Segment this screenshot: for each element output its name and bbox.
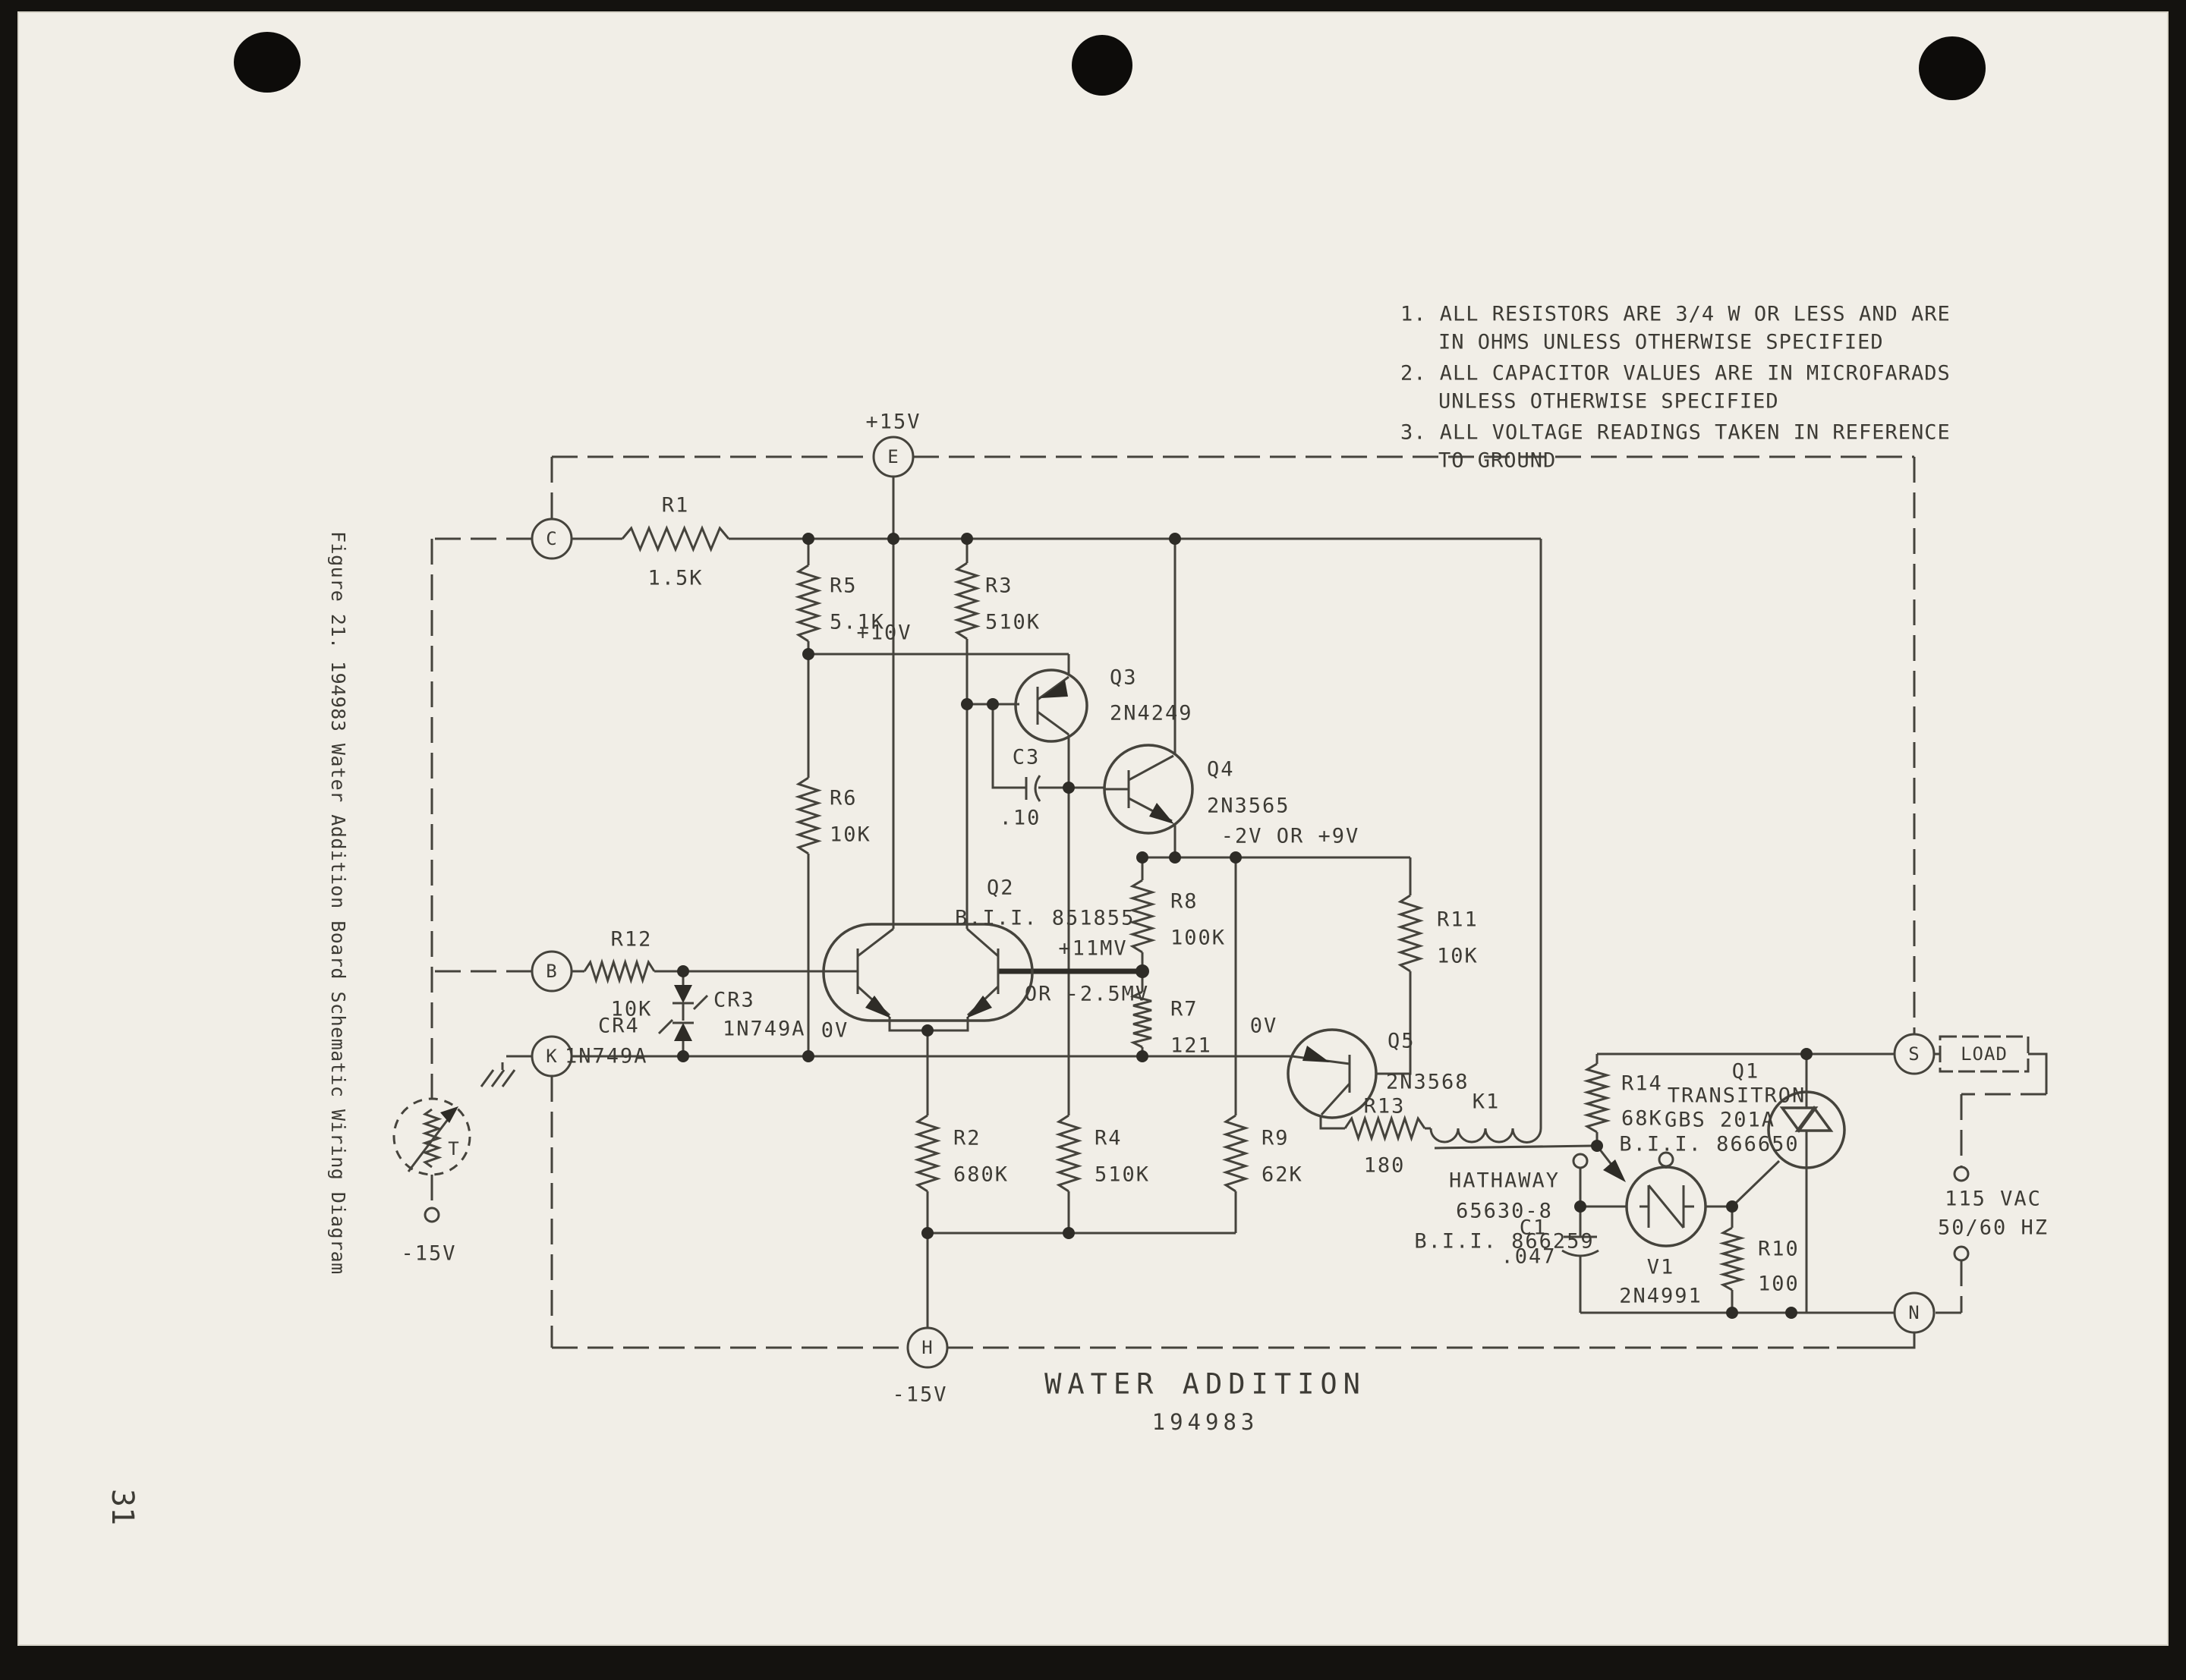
terminal-k-label: K [546,1046,557,1067]
terminal-s-label: S [1908,1043,1920,1065]
note-line: TO GROUND [1438,449,1556,473]
r14-ref: R14 [1621,1072,1663,1096]
r9-value: 62K [1262,1163,1303,1187]
terminal-b-label: B [546,961,557,982]
r3-ref: R3 [985,574,1013,598]
k1-ref: K1 [1473,1090,1501,1114]
punch-hole [234,32,301,93]
hz-label: 50/60 HZ [1938,1216,2049,1240]
punch-hole [1919,36,1986,100]
load-label: LOAD [1961,1043,2008,1065]
schematic-number: 194983 [1152,1409,1259,1435]
r11-value: 10K [1437,945,1479,968]
cr3-value: 1N749A [723,1018,806,1041]
voltage-0v-left: 0V [821,1019,849,1043]
r8-value: 100K [1170,927,1226,950]
voltage-2v-9v: -2V OR +9V [1221,825,1360,848]
v1-value: 2N4991 [1619,1285,1702,1308]
terminal-c-label: C [546,528,557,549]
voltage-11mv: +11MV [1058,937,1127,961]
q4-value: 2N3565 [1207,794,1290,818]
r6-ref: R6 [830,787,858,810]
r1-ref: R1 [662,494,690,518]
r10-ref: R10 [1758,1238,1800,1261]
r14-value: 68K [1621,1107,1663,1131]
scanned-schematic-page: +15V E C B K H S N LOAD T R1 1.5K +10V R… [0,0,2186,1680]
q4-ref: Q4 [1207,758,1235,782]
schematic-canvas: +15V E C B K H S N LOAD T R1 1.5K +10V R… [0,0,2186,1680]
note-line: 3. ALL VOLTAGE READINGS TAKEN IN REFEREN… [1400,421,1951,445]
r10-value: 100 [1758,1273,1800,1296]
r4-value: 510K [1095,1163,1150,1187]
q1-bii: B.I.I. 866650 [1619,1133,1799,1156]
r4-ref: R4 [1095,1127,1123,1150]
schematic-title: WATER ADDITION [1044,1368,1366,1401]
r5-value: 5.1K [830,611,885,634]
r12-ref: R12 [611,928,653,952]
q5-value: 2N3568 [1386,1071,1469,1094]
q3-value: 2N4249 [1110,702,1193,725]
k1-maker: HATHAWAY [1449,1169,1560,1193]
voltage-plus15: +15V [865,411,921,434]
note-line: 1. ALL RESISTORS ARE 3/4 W OR LESS AND A… [1400,303,1951,326]
c1-value: .047 [1501,1245,1556,1269]
h-minus15: -15V [892,1383,947,1407]
q1-maker: TRANSITRON [1668,1084,1806,1108]
note-line: UNLESS OTHERWISE SPECIFIED [1438,390,1779,414]
v1-ref: V1 [1647,1256,1675,1279]
terminal-n-label: N [1908,1302,1920,1323]
vac-label: 115 VAC [1945,1188,2042,1211]
terminal-e-label: E [887,446,899,467]
probe-minus15: -15V [401,1242,456,1266]
page-number: 31 [105,1489,140,1525]
r5-ref: R5 [830,574,858,598]
voltage-0v-right: 0V [1250,1015,1278,1038]
note-line: 2. ALL CAPACITOR VALUES ARE IN MICROFARA… [1400,362,1951,385]
terminal-h-label: H [921,1337,933,1358]
c1-ref: C1 [1520,1216,1548,1240]
r7-ref: R7 [1170,998,1199,1021]
r2-ref: R2 [953,1127,981,1150]
r7-value: 121 [1170,1034,1212,1058]
c3-ref: C3 [1013,746,1041,769]
voltage-minus25mv: OR -2.5MV [1025,983,1149,1006]
q1-value: GBS 201A [1665,1109,1775,1132]
r13-value: 180 [1364,1154,1406,1178]
cr4-ref: CR4 [598,1015,640,1038]
figure-caption: Figure 21. 194983 Water Addition Board S… [327,531,349,1275]
q3-ref: Q3 [1110,666,1138,690]
note-line: IN OHMS UNLESS OTHERWISE SPECIFIED [1438,331,1884,354]
q2-value: B.I.I. 851855 [955,907,1135,930]
probe-t-label: T [448,1138,459,1159]
r9-ref: R9 [1262,1127,1290,1150]
r13-ref: R13 [1364,1095,1406,1118]
r3-value: 510K [985,611,1041,634]
r6-value: 10K [830,823,871,847]
punch-hole [1072,35,1132,96]
q2-ref: Q2 [987,876,1015,900]
r2-value: 680K [953,1163,1009,1187]
r8-ref: R8 [1170,890,1199,914]
cr3-ref: CR3 [713,989,755,1012]
q1-ref: Q1 [1732,1060,1760,1084]
cr4-value: 1N749A [565,1045,648,1068]
c3-value: .10 [1000,807,1041,830]
r1-value: 1.5K [647,567,703,590]
r11-ref: R11 [1437,908,1479,932]
q5-ref: Q5 [1388,1030,1416,1053]
